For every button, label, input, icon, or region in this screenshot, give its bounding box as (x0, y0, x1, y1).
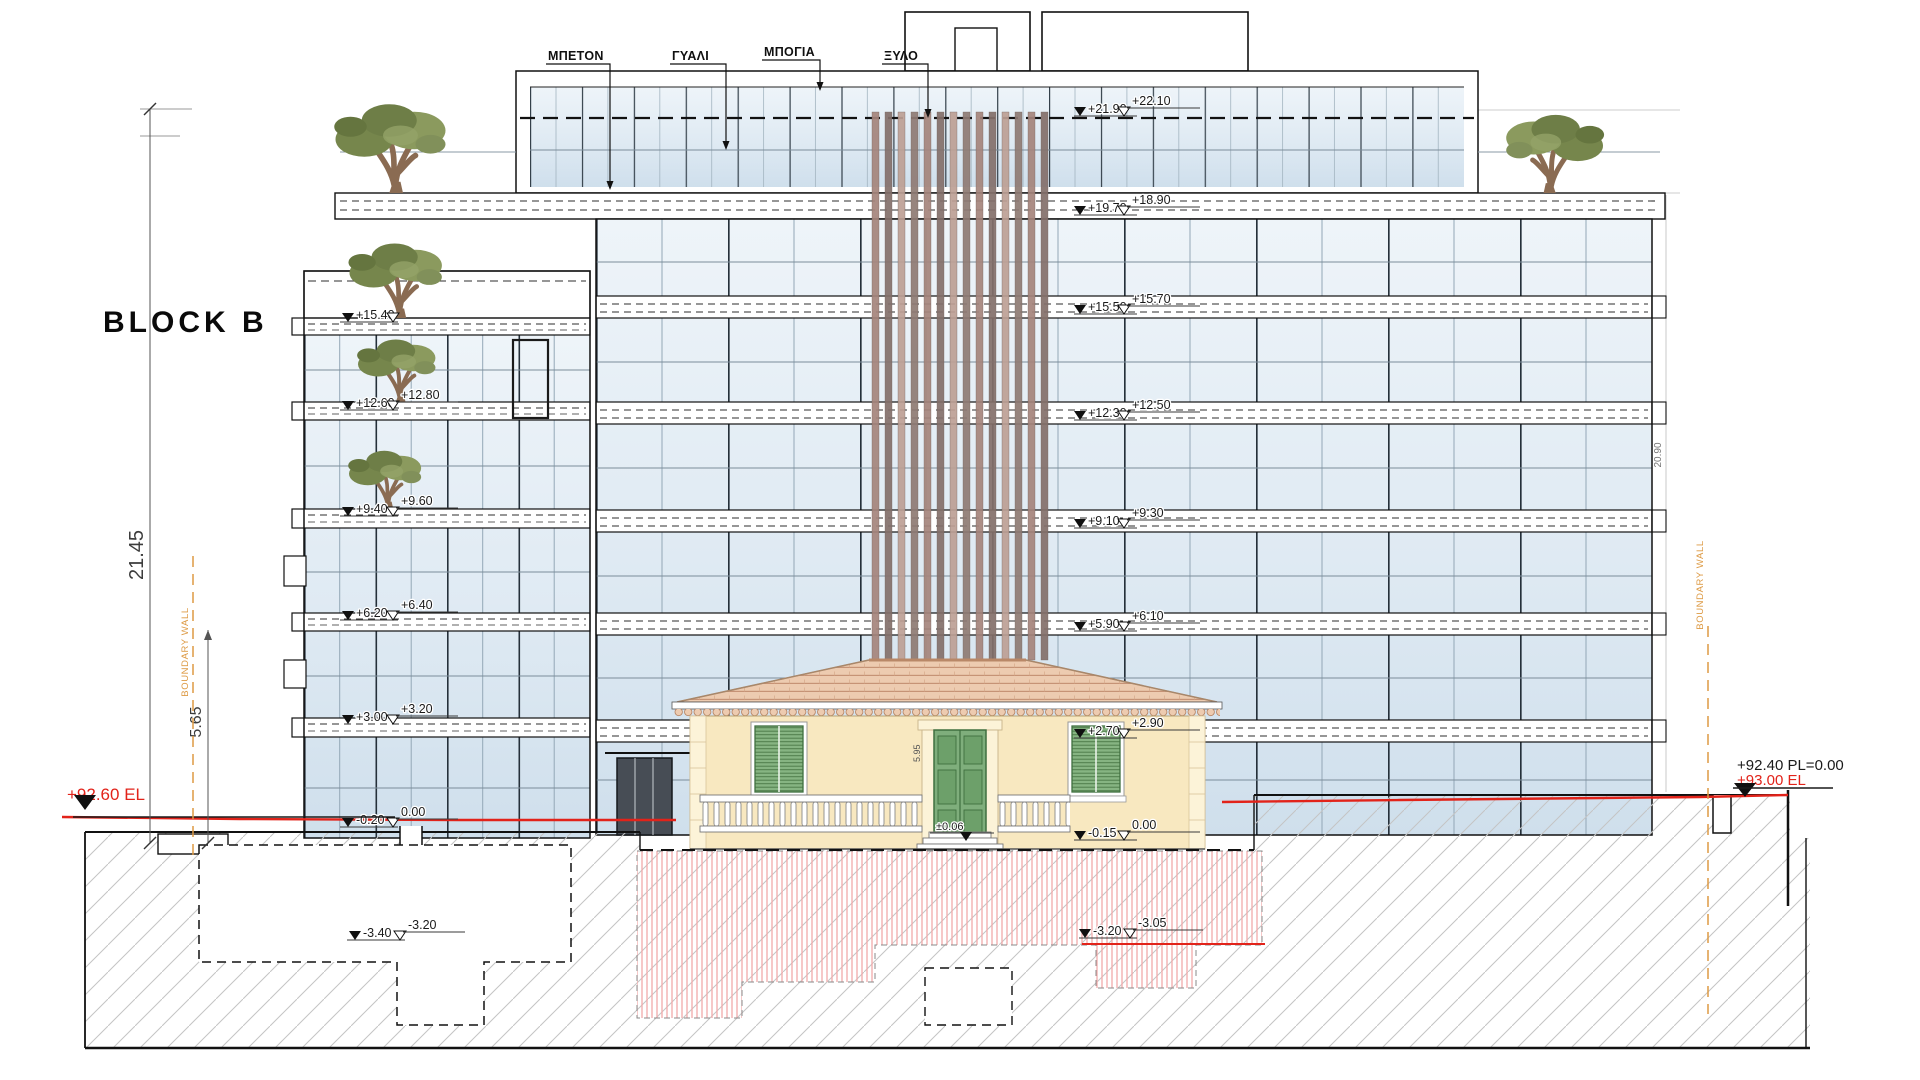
dimension-right-total: 20.90 (1653, 442, 1664, 467)
level-marker: +15.40 (340, 308, 399, 322)
svg-text:-3.05: -3.05 (1138, 916, 1167, 930)
balustrade (700, 795, 1070, 832)
svg-text:-3.20: -3.20 (1093, 924, 1122, 938)
svg-text:+9.10: +9.10 (1088, 514, 1120, 528)
dimension-left-lower: 5.65 (188, 630, 214, 849)
svg-text:+2.90: +2.90 (1132, 716, 1164, 730)
balcony-slab-tabs-right (1652, 296, 1666, 742)
eave-fascia (672, 702, 1222, 709)
svg-text:+12.50: +12.50 (1132, 398, 1171, 412)
svg-text:+15.70: +15.70 (1132, 292, 1171, 306)
level-label: +22.10 (1132, 94, 1171, 108)
svg-text:-3.20: -3.20 (408, 918, 437, 932)
svg-text:+3.20: +3.20 (401, 702, 433, 716)
svg-text:+9.40: +9.40 (356, 502, 388, 516)
rooftop-structures (905, 12, 1248, 71)
svg-text:+6.10: +6.10 (1132, 609, 1164, 623)
svg-text:+5.90: +5.90 (1088, 617, 1120, 631)
svg-text:21.45: 21.45 (126, 530, 148, 580)
left-block (284, 271, 590, 838)
penthouse-level (340, 71, 1660, 193)
svg-text:+9.60: +9.60 (401, 494, 433, 508)
svg-text:+6.20: +6.20 (356, 606, 388, 620)
svg-text:0.00: 0.00 (401, 805, 425, 819)
svg-text:ΜΠΟΓΙΑ: ΜΠΟΓΙΑ (764, 45, 815, 59)
svg-text:+3.00: +3.00 (356, 710, 388, 724)
elevation-drawing: +21.90 +22.10 +19.70 +18.90 +15.50 +15.7… (0, 0, 1920, 1080)
elevation-drawing-sheet: +21.90 +22.10 +19.70 +18.90 +15.50 +15.7… (0, 0, 1920, 1080)
boundary-wall-label-right: BOUNDARY WALL (1695, 540, 1706, 629)
svg-text:ΞΥΛΟ: ΞΥΛΟ (884, 49, 918, 63)
svg-text:0.00: 0.00 (1132, 818, 1156, 832)
shuttered-window-left (749, 722, 809, 802)
svg-text:+18.90: +18.90 (1132, 193, 1171, 207)
svg-text:+6.40: +6.40 (401, 598, 433, 612)
svg-text:±0.06: ±0.06 (936, 821, 963, 833)
svg-text:-3.40: -3.40 (363, 926, 392, 940)
svg-text:-0.15: -0.15 (1088, 826, 1117, 840)
roof-garden-slab (335, 193, 1665, 219)
svg-text:+2.70: +2.70 (1088, 724, 1120, 738)
svg-text:+12.80: +12.80 (401, 388, 440, 402)
svg-text:ΓΥΑΛΙ: ΓΥΑΛΙ (672, 49, 709, 63)
boundary-wall-label-left: BOUNDARY WALL (180, 607, 191, 696)
svg-text:5.65: 5.65 (188, 706, 205, 737)
boundary-wall-left: BOUNDARY WALL (180, 556, 193, 856)
dimension-left-total: 21.45 (126, 103, 156, 849)
svg-text:-0.20: -0.20 (356, 813, 385, 827)
house-front-dim: 5.95 (912, 744, 922, 762)
drawing-title: BLOCK B (103, 306, 268, 339)
entrance-steps (917, 832, 1003, 850)
svg-text:ΜΠΕΤΟΝ: ΜΠΕΤΟΝ (548, 49, 604, 63)
pit-outline (925, 968, 1012, 1025)
svg-text:+9.30: +9.30 (1132, 506, 1164, 520)
svg-text:20.90: 20.90 (1653, 442, 1664, 467)
right-footing (1713, 795, 1731, 833)
